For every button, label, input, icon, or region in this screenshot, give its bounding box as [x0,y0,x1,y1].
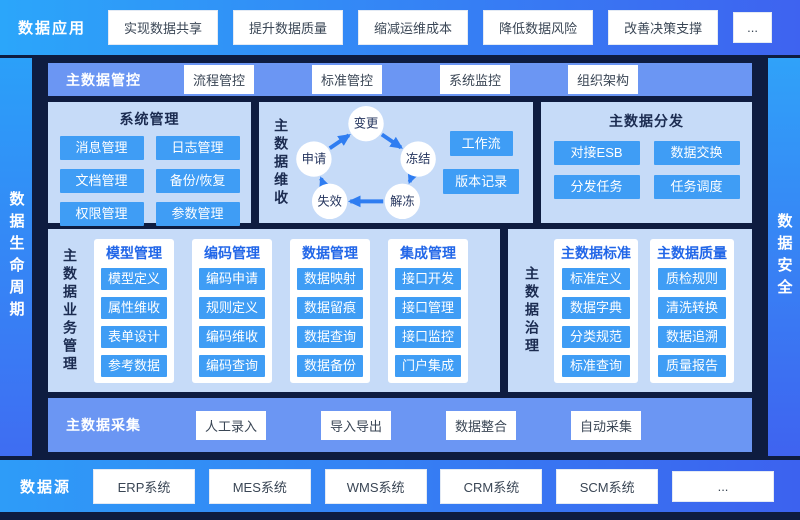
flow-arrow [321,178,323,183]
application-ellipsis-box: ... [733,12,772,43]
collection-item: 自动采集 [571,411,641,440]
data-security-label: 数据安全 [774,213,795,301]
data-source-box: MES系统 [209,469,311,504]
cycle-node-label: 冻结 [406,151,431,166]
module-button: 数据追溯 [658,326,726,348]
module-button: 标准定义 [562,268,630,290]
module-button: 编码维收 [199,326,265,348]
collection-item: 数据整合 [446,411,516,440]
master-data-business-panel: 主数据业务管理 模型管理 模型定义 属性维收 表单设计 参考数据 编码管理 编码… [48,229,500,392]
data-security-bar: 数据安全 [768,58,800,456]
data-source-box: SCM系统 [556,469,658,504]
module-button: 表单设计 [101,326,167,348]
application-benefit-box: 缩减运维成本 [358,10,468,45]
flow-arrow [330,135,349,148]
application-benefit-box: 降低数据风险 [483,10,593,45]
flow-arrow [410,177,412,182]
module-button: 数据字典 [562,297,630,319]
module-card: 集成管理 接口开发 接口管理 接口监控 门户集成 [388,239,468,383]
module-button: 规则定义 [199,297,265,319]
card-title: 模型管理 [94,245,174,261]
module-button: 编码申请 [199,268,265,290]
business-panel-title: 主数据业务管理 [60,248,80,374]
control-item: 组织架构 [568,65,638,94]
business-cards: 模型管理 模型定义 属性维收 表单设计 参考数据 编码管理 编码申请 规则定义 … [94,239,468,383]
control-item: 流程管控 [184,65,254,94]
module-card: 数据管理 数据映射 数据留痕 数据查询 数据备份 [290,239,370,383]
module-button: 文档管理 [60,169,144,193]
module-card: 主数据标准 标准定义 数据字典 分类规范 标准查询 [554,239,638,383]
data-sources-bar: 数据源 ERP系统 MES系统 WMS系统 CRM系统 SCM系统 ... [0,460,800,512]
system-management-grid: 消息管理 日志管理 文档管理 备份/恢复 权限管理 参数管理 [48,136,251,226]
master-data-control-label: 主数据管控 [66,70,184,90]
module-button: 任务调度 [654,175,740,199]
module-button: 数据查询 [297,326,363,348]
maintenance-cycle-diagram: 变更 冻结 解冻 失效 申请 [291,104,443,222]
data-lifecycle-bar: 数据生命周期 [0,58,32,456]
module-button: 分类规范 [562,326,630,348]
module-button: 模型定义 [101,268,167,290]
card-title: 主数据标准 [554,245,638,261]
cycle-node-label: 变更 [354,115,379,130]
module-button: 参数管理 [156,202,240,226]
module-button: 日志管理 [156,136,240,160]
module-card: 主数据质量 质检规则 清洗转换 数据追溯 质量报告 [650,239,734,383]
module-button: 门户集成 [395,355,461,377]
master-data-collection-label: 主数据采集 [66,415,196,435]
control-item: 标准管控 [312,65,382,94]
master-data-distribution-panel: 主数据分发 对接ESB 数据交换 分发任务 任务调度 [541,102,752,223]
module-button: 对接ESB [554,141,640,165]
data-source-box: ERP系统 [93,469,195,504]
module-button: 参考数据 [101,355,167,377]
card-title: 数据管理 [290,245,370,261]
master-data-maintenance-panel: 主数据维收 变更 冻结 解冻 失效 [259,102,533,223]
module-button: 标准查询 [562,355,630,377]
module-button: 版本记录 [443,169,519,194]
collection-items: 人工录入 导入导出 数据整合 自动采集 [196,411,641,440]
module-button: 工作流 [450,131,513,156]
card-title: 集成管理 [388,245,468,261]
data-applications-bar: 数据应用 实现数据共享 提升数据质量 缩减运维成本 降低数据风险 改善决策支撑 … [0,0,800,55]
module-button: 清洗转换 [658,297,726,319]
data-lifecycle-label: 数据生命周期 [6,191,27,323]
governance-panel-title: 主数据治理 [522,266,542,356]
module-button: 数据交换 [654,141,740,165]
application-benefit-box: 提升数据质量 [233,10,343,45]
module-button: 接口开发 [395,268,461,290]
collection-item: 人工录入 [196,411,266,440]
module-button: 接口监控 [395,326,461,348]
module-button: 数据映射 [297,268,363,290]
architecture-body: 主数据管控 流程管控 标准管控 系统监控 组织架构 系统管理 消息管理 日志管理… [32,55,768,460]
data-source-ellipsis-box: ... [672,471,774,502]
control-items: 流程管控 标准管控 系统监控 组织架构 [184,65,638,94]
lower-panels-row: 主数据业务管理 模型管理 模型定义 属性维收 表单设计 参考数据 编码管理 编码… [48,229,752,392]
module-card: 编码管理 编码申请 规则定义 编码维收 编码查询 [192,239,272,383]
module-button: 属性维收 [101,297,167,319]
card-title: 主数据质量 [650,245,734,261]
module-button: 质量报告 [658,355,726,377]
distribution-panel-title: 主数据分发 [541,111,752,131]
cycle-node-label: 失效 [317,193,342,208]
card-title: 编码管理 [192,245,272,261]
data-source-box: WMS系统 [325,469,427,504]
module-button: 接口管理 [395,297,461,319]
system-management-title: 系统管理 [48,109,251,129]
module-button: 消息管理 [60,136,144,160]
module-card: 模型管理 模型定义 属性维收 表单设计 参考数据 [94,239,174,383]
governance-cards: 主数据标准 标准定义 数据字典 分类规范 标准查询 主数据质量 质检规则 清洗转… [554,239,734,383]
master-data-governance-panel: 主数据治理 主数据标准 标准定义 数据字典 分类规范 标准查询 主数据质量 质检… [508,229,752,392]
control-item: 系统监控 [440,65,510,94]
distribution-grid: 对接ESB 数据交换 分发任务 任务调度 [541,141,752,199]
master-data-collection-row: 主数据采集 人工录入 导入导出 数据整合 自动采集 [48,398,752,452]
master-data-control-row: 主数据管控 流程管控 标准管控 系统监控 组织架构 [48,63,752,96]
application-benefit-box: 改善决策支撑 [608,10,718,45]
data-source-box: CRM系统 [440,469,542,504]
module-button: 数据备份 [297,355,363,377]
application-benefit-box: 实现数据共享 [108,10,218,45]
module-button: 分发任务 [554,175,640,199]
module-button: 编码查询 [199,355,265,377]
data-applications-items: 实现数据共享 提升数据质量 缩减运维成本 降低数据风险 改善决策支撑 ... [108,10,772,45]
maintenance-side-items: 工作流 版本记录 [443,131,519,194]
middle-panels-row: 系统管理 消息管理 日志管理 文档管理 备份/恢复 权限管理 参数管理 主数据维… [48,102,752,223]
cycle-node-label: 解冻 [390,193,415,208]
data-applications-label: 数据应用 [18,17,86,38]
module-button: 备份/恢复 [156,169,240,193]
module-button: 质检规则 [658,268,726,290]
data-sources-label: 数据源 [20,476,71,497]
module-button: 权限管理 [60,202,144,226]
data-sources-items: ERP系统 MES系统 WMS系统 CRM系统 SCM系统 ... [93,469,774,504]
system-management-panel: 系统管理 消息管理 日志管理 文档管理 备份/恢复 权限管理 参数管理 [48,102,251,223]
cycle-node-label: 申请 [302,152,327,166]
flow-arrow [382,134,401,147]
maintenance-panel-title: 主数据维收 [271,118,291,208]
collection-item: 导入导出 [321,411,391,440]
module-button: 数据留痕 [297,297,363,319]
